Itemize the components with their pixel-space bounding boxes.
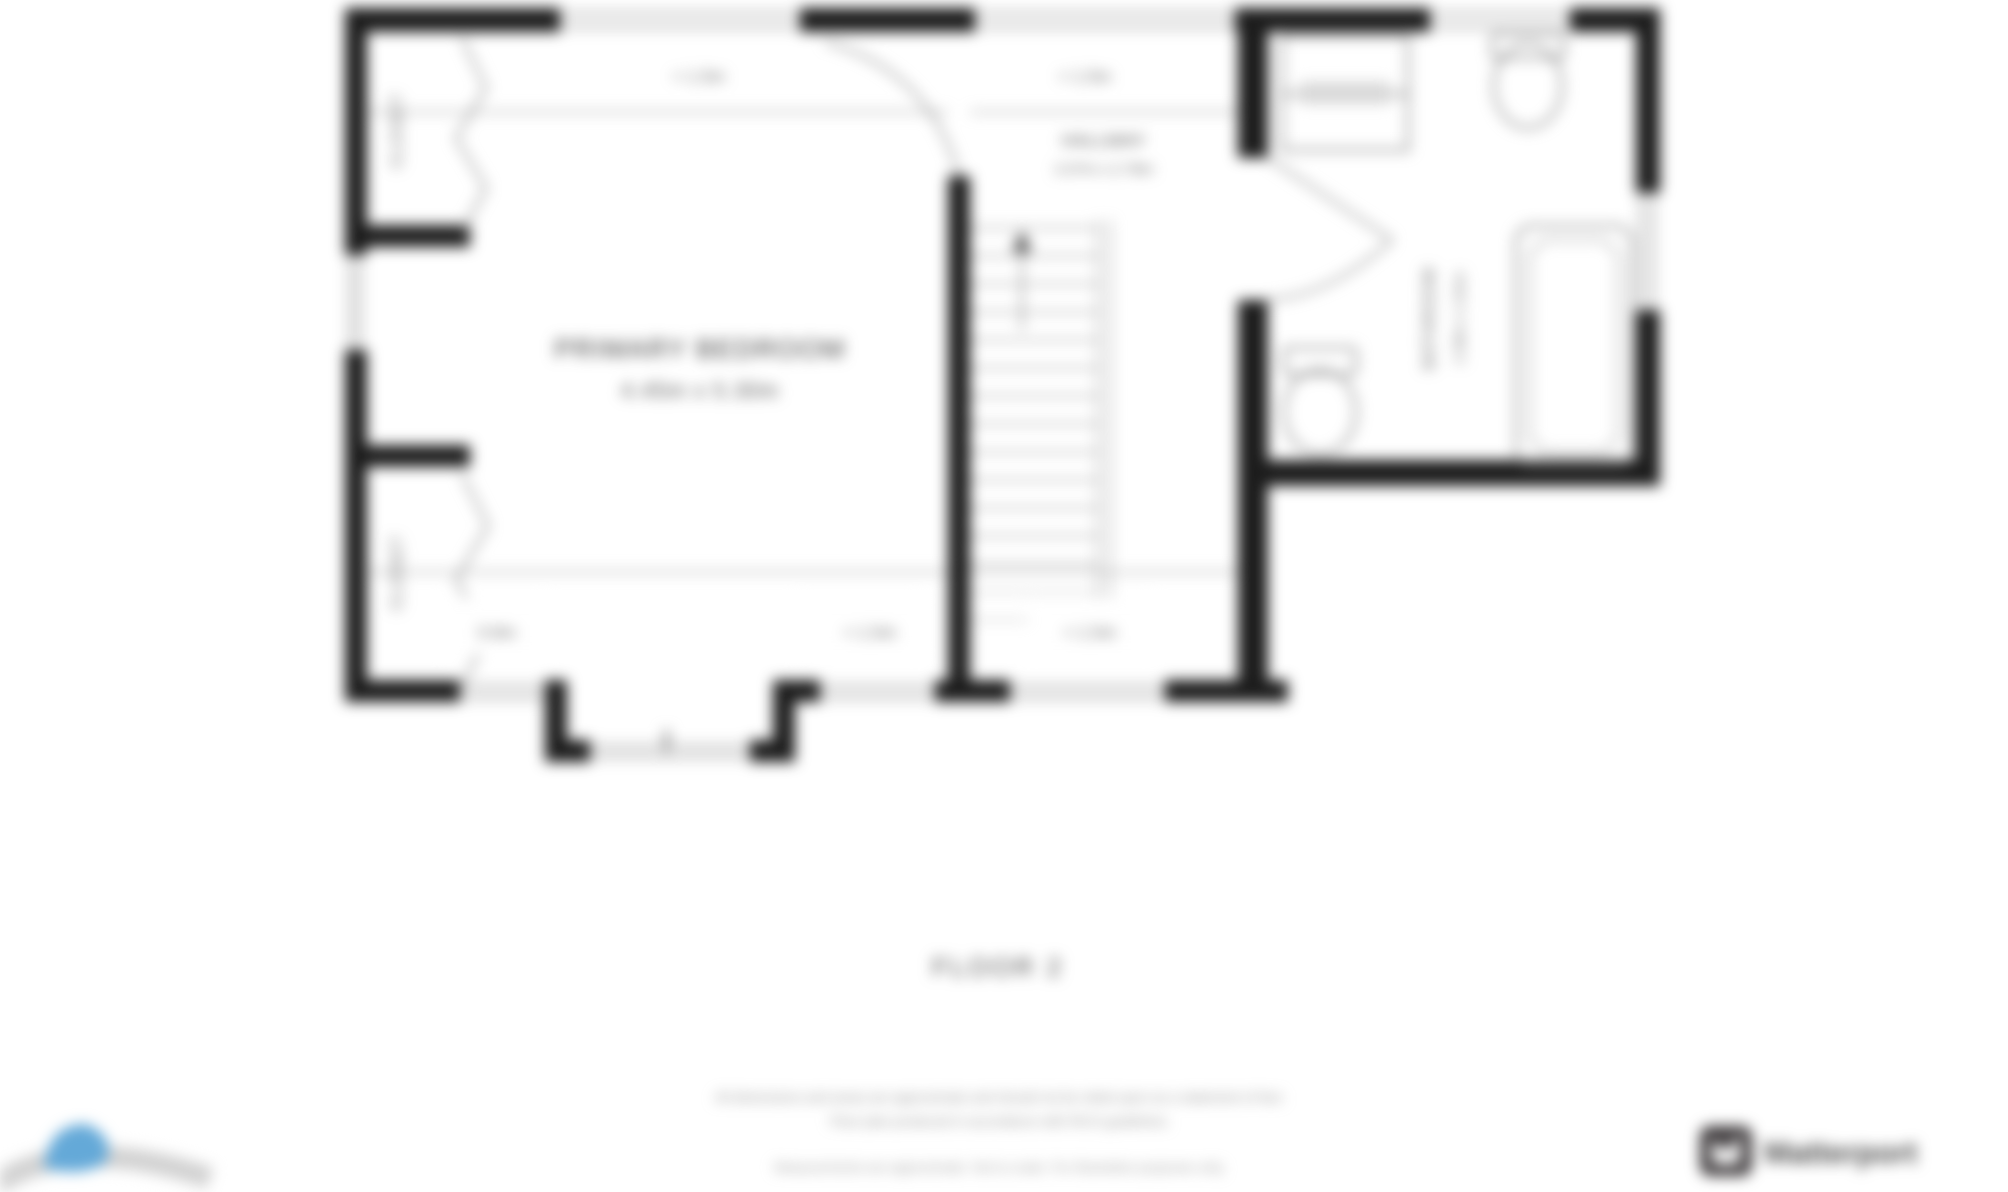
agency-logo (0, 1124, 210, 1192)
wall-segment (773, 680, 820, 702)
agency-logo-house-icon (44, 1124, 109, 1172)
disclaimer-line-3: Measurements are approximate. Not to sca… (774, 1160, 1225, 1175)
window-dim-closet-bottom: 0.9m (478, 623, 516, 642)
wall-segment (948, 176, 970, 680)
wall-segment (345, 8, 367, 255)
floorplan-screenshot: PRIMARY BEDROOM 4.45m x 5.30m HALLWAY 2.… (0, 0, 2008, 1192)
closet-bifold-door (456, 38, 486, 232)
wall-segment (935, 680, 1010, 702)
wall-segment (1268, 460, 1660, 486)
matterport-icon (1700, 1126, 1752, 1176)
staircase (970, 220, 1110, 632)
wall-segment (1636, 8, 1660, 193)
closet-bottom-label: CLOSET (389, 534, 406, 610)
wall-segment (345, 680, 460, 702)
wall-segment (345, 225, 470, 247)
hallway-label: HALLWAY (1061, 131, 1146, 150)
matterport-wordmark: Matterport (1764, 1135, 1917, 1170)
matterport-logo: Matterport (1700, 1126, 1917, 1176)
bathroom-door-arc (1268, 240, 1392, 300)
wall-segment (545, 740, 590, 762)
bay-window-tick (664, 730, 669, 752)
wall-segment (1238, 300, 1268, 702)
window-dim-bedroom-bottom: < 1.5m (844, 623, 896, 642)
primary-bedroom-label: PRIMARY BEDROOM (554, 334, 846, 364)
disclaimer-line-1: All dimensions and areas are approximate… (715, 1090, 1285, 1105)
wall-segment (1165, 680, 1288, 702)
window-dim-bedroom-top: < 1.5m (673, 67, 725, 86)
bedroom-door-arc (825, 42, 959, 176)
wall-segment (345, 350, 367, 702)
vanity-detail (1300, 82, 1390, 104)
floor-title: FLOOR 2 (932, 952, 1064, 982)
bathroom-fixtures (1282, 34, 1632, 466)
sink-basin (1494, 44, 1562, 128)
closet-bifold-door (456, 474, 488, 686)
hallway-dims: 2.07m x 2.78m (1054, 161, 1153, 178)
sink-backsplash (1492, 34, 1564, 58)
primary-bedroom-dims: 4.45m x 5.30m (621, 378, 780, 403)
bathroom-label: BATHROOM (1421, 266, 1438, 369)
label-backgrounds (446, 598, 1152, 654)
wall-segment (1636, 310, 1660, 486)
bathroom-dims: 2.39m x 1.81m (1451, 272, 1467, 365)
bathtub-inner (1530, 240, 1618, 452)
wall-segment (345, 8, 560, 32)
disclaimer-line-2: Floor plan produced in accordance with R… (830, 1114, 1170, 1129)
floorplan-svg: PRIMARY BEDROOM 4.45m x 5.30m HALLWAY 2.… (0, 0, 2008, 1192)
toilet-bowl (1284, 370, 1356, 454)
wall-segment (345, 445, 470, 467)
blurred-content: PRIMARY BEDROOM 4.45m x 5.30m HALLWAY 2.… (0, 0, 2008, 1192)
closet-top-label: CLOSET (389, 92, 406, 168)
bathroom-door-leaf (1268, 158, 1392, 240)
window-dim-hallway-bottom: < 1.5m (1064, 623, 1116, 642)
window-dim-hallway-top: < 1.5m (1059, 67, 1111, 86)
wall-segment (1238, 8, 1268, 158)
wall-segment (800, 8, 975, 32)
stair-up-arrow-icon (1012, 230, 1032, 252)
bathtub-outer (1516, 226, 1632, 466)
